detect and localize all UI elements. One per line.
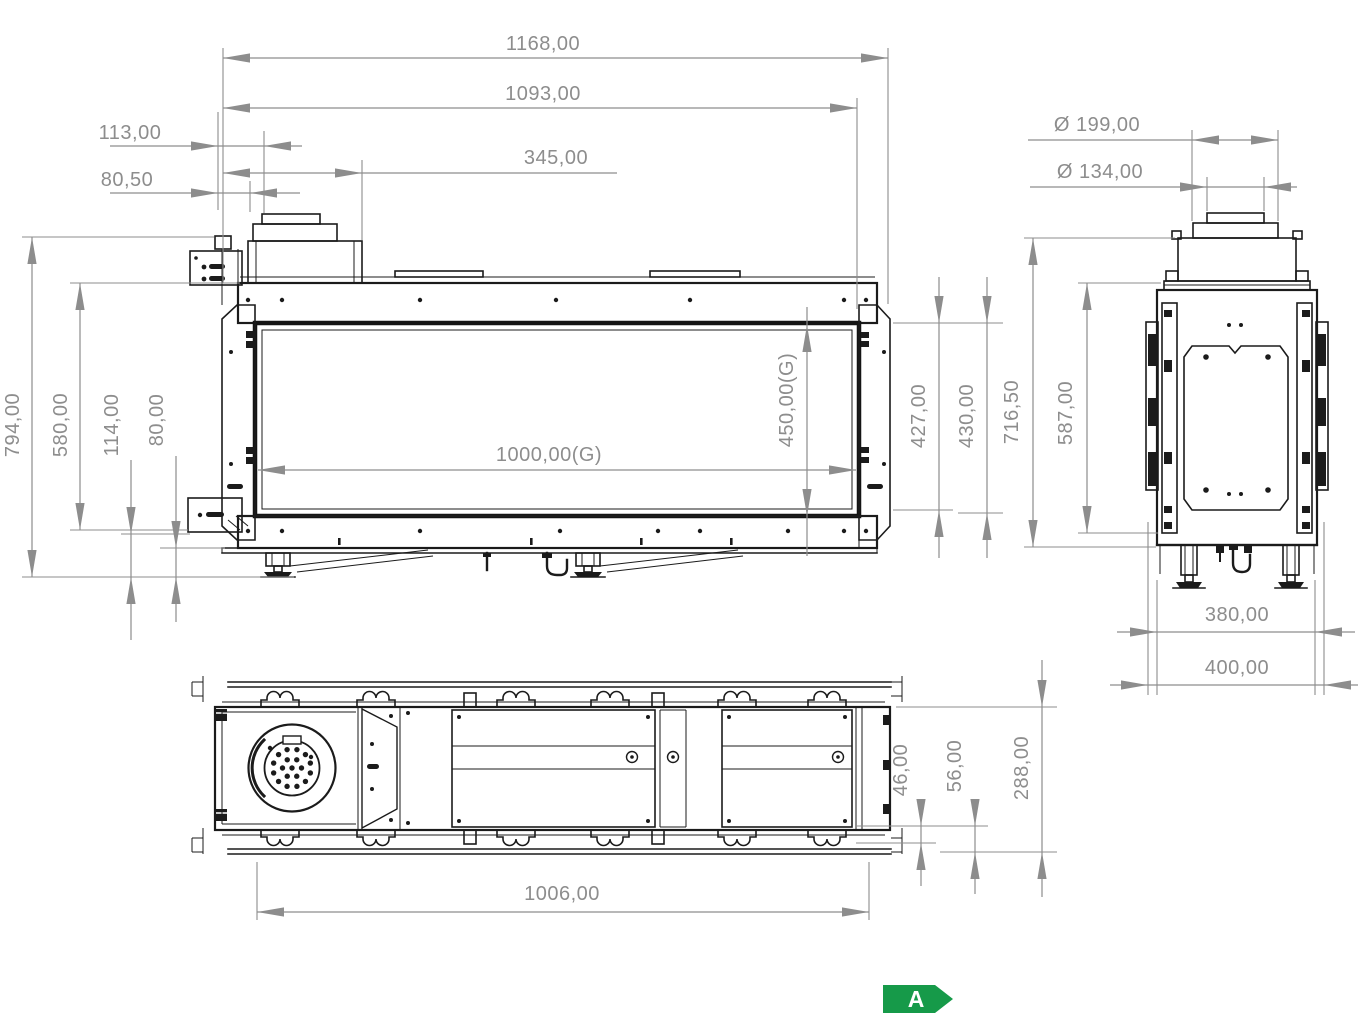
front-top-flange: [238, 283, 877, 323]
dim-label-h430: 430,00: [956, 384, 978, 448]
dimension-d134: Ø 134,00: [1030, 161, 1297, 211]
front-top-tab-right: [650, 271, 740, 277]
side-flue-step: [1193, 223, 1278, 238]
dim-label-h56: 56,00: [944, 740, 966, 793]
dim-label-w400: 400,00: [1205, 657, 1269, 679]
front-right-leg: [571, 550, 743, 577]
front-right-side-plate: [859, 305, 890, 540]
dim-label-h716: 716,50: [1001, 380, 1023, 444]
dimension-h580: 580,00: [50, 283, 240, 530]
dimension-h80: 80,00: [146, 394, 225, 622]
dim-label-w113: 113,00: [99, 122, 162, 144]
dim-label-h580: 580,00: [50, 393, 72, 457]
dimension-g1000: 1000,00(G): [258, 444, 856, 475]
dimension-h430: 430,00: [956, 277, 1003, 558]
dim-label-w1093: 1093,00: [505, 83, 581, 105]
dim-label-w380: 380,00: [1205, 604, 1269, 626]
dim-label-d199: Ø 199,00: [1054, 114, 1140, 136]
front-screw-dots: [246, 298, 868, 545]
dim-label-h46: 46,00: [890, 744, 912, 797]
technical-drawing-page: 1168,001093,00113,00345,0080,50Ø 199,00Ø…: [0, 0, 1364, 1021]
dim-label-w345: 345,00: [524, 147, 588, 169]
side-top-cap: [1178, 238, 1296, 281]
dim-label-w1168: 1168,00: [506, 33, 580, 55]
front-glass-opening: [255, 323, 859, 516]
front-bottom-flange: [238, 516, 877, 548]
energy-class-letter: A: [908, 986, 925, 1012]
side-view: [1146, 213, 1328, 588]
dim-label-g1000: 1000,00(G): [496, 444, 602, 466]
dimension-g450: 450,00(G): [776, 307, 812, 556]
dim-label-w80_5: 80,50: [101, 169, 154, 191]
front-top-tab-left: [395, 271, 483, 277]
dim-label-h794: 794,00: [2, 393, 24, 457]
front-left-side-plate: [222, 305, 255, 540]
dim-label-d134: Ø 134,00: [1057, 161, 1143, 183]
dim-label-h288: 288,00: [1011, 736, 1033, 800]
dimension-h587: 587,00: [1055, 283, 1161, 533]
energy-class-badge: A: [883, 985, 953, 1013]
dim-label-h427: 427,00: [908, 384, 930, 448]
dim-label-w1006: 1006,00: [524, 883, 600, 905]
front-left-leg: [261, 550, 433, 577]
dimension-w80_5: 80,50: [101, 169, 300, 212]
side-flue-collar: [1207, 213, 1264, 223]
dimension-w113: 113,00: [99, 112, 302, 213]
plan-view: [192, 676, 902, 854]
dim-label-h80: 80,00: [146, 394, 168, 447]
plan-trapezoid-bracket: [362, 709, 397, 828]
dim-label-h114: 114,00: [101, 394, 123, 457]
side-inner-chamber: [1184, 346, 1288, 510]
dimension-h716: 716,50: [1001, 238, 1175, 547]
side-gas-pipe: [1233, 550, 1250, 572]
dim-label-h587: 587,00: [1055, 381, 1077, 445]
plan-flue-circle: [249, 725, 336, 812]
front-flue-collar: [262, 214, 320, 224]
dimension-w1093: 1093,00: [223, 83, 857, 309]
dim-label-g450: 450,00(G): [776, 353, 798, 448]
dimension-h46: 46,00: [856, 744, 988, 886]
drawing-canvas: 1168,001093,00113,00345,0080,50Ø 199,00Ø…: [0, 0, 1364, 1021]
side-legs: [1160, 545, 1314, 588]
dimension-w1006: 1006,00: [257, 862, 869, 920]
front-flue-step: [253, 224, 337, 241]
side-body: [1157, 290, 1317, 545]
